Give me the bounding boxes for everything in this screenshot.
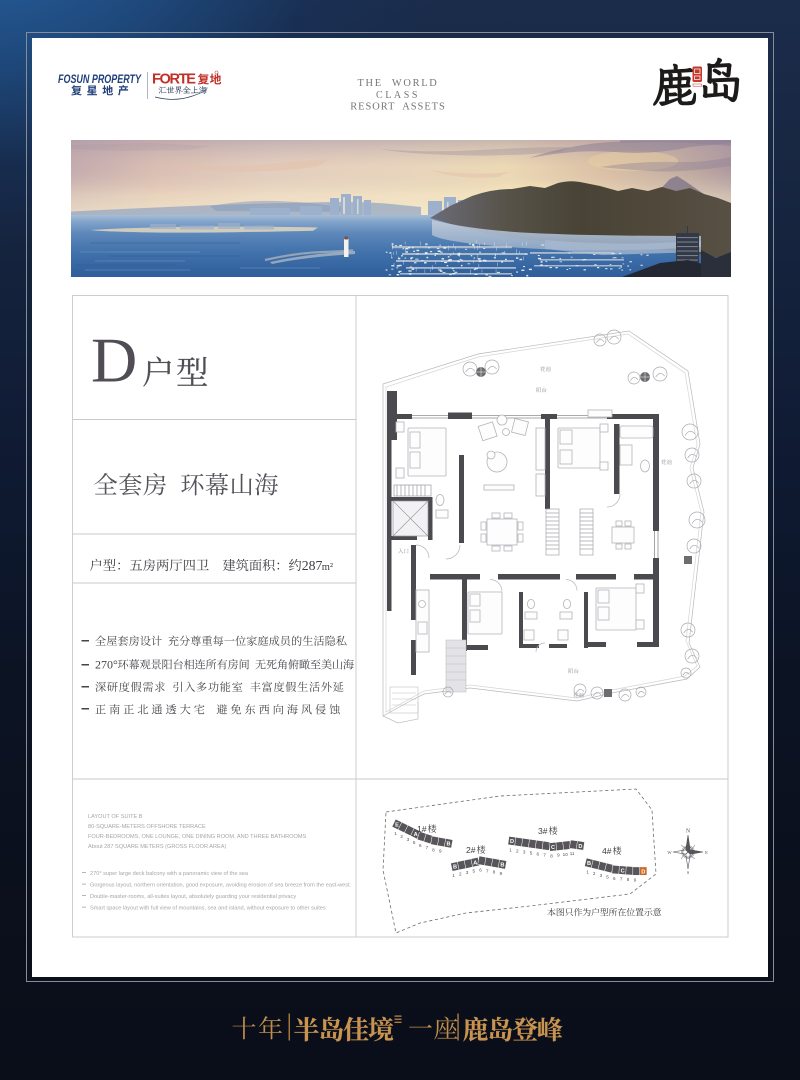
svg-text:2#: 2# [466, 845, 476, 855]
svg-text:D: D [641, 869, 645, 875]
svg-text:5: 5 [530, 850, 533, 855]
svg-text:1#: 1# [417, 824, 427, 834]
svg-text:7: 7 [426, 845, 429, 850]
svg-text:C: C [551, 845, 555, 851]
svg-text:B: B [453, 865, 457, 871]
svg-text:6: 6 [419, 843, 422, 848]
svg-text:Double-master-rooms, all-suite: Double-master-rooms, all-suites layout, … [90, 894, 296, 900]
svg-text:9: 9 [439, 849, 442, 854]
svg-text:B: B [446, 841, 450, 847]
svg-text:7: 7 [620, 877, 623, 882]
svg-text:3#: 3# [538, 826, 548, 836]
svg-text:N: N [686, 829, 691, 835]
svg-text:1: 1 [509, 848, 512, 853]
svg-text:D: D [510, 839, 514, 845]
svg-text:10: 10 [563, 852, 569, 857]
svg-text:Gorgeous layout, northern orie: Gorgeous layout, northern orientation, g… [90, 883, 352, 889]
svg-text:2: 2 [400, 834, 403, 839]
svg-text:2: 2 [516, 848, 519, 853]
svg-text:3: 3 [600, 873, 603, 878]
svg-text:Smart space layout with full v: Smart space layout with full view of mou… [90, 906, 326, 912]
svg-text:8: 8 [432, 847, 435, 852]
svg-text:THE WORLD: THE WORLD [358, 78, 439, 89]
svg-text:D: D [91, 325, 137, 396]
svg-text:CLASS: CLASS [376, 90, 420, 101]
svg-text:8: 8 [493, 870, 496, 875]
svg-text:3: 3 [523, 849, 526, 854]
svg-text:7: 7 [543, 852, 546, 857]
svg-text:5: 5 [606, 875, 609, 880]
svg-text:5: 5 [413, 840, 416, 845]
svg-text:270° super large deck balcony: 270° super large deck balcony with a pan… [90, 871, 249, 877]
svg-text:m²: m² [322, 562, 333, 573]
svg-text:9: 9 [634, 878, 637, 883]
svg-text:E: E [395, 823, 399, 829]
svg-text:287: 287 [302, 558, 323, 573]
svg-text:About 287 SQUARE METERS (GROSS: About 287 SQUARE METERS (GROSS FLOOR ARE… [88, 844, 226, 850]
svg-text:B: B [587, 861, 591, 867]
svg-text:9: 9 [500, 871, 503, 876]
svg-text:D: D [578, 844, 582, 850]
svg-text:80-SQUARE-METERS OFFSHORE TERR: 80-SQUARE-METERS OFFSHORE TERRACE [88, 824, 206, 830]
svg-text:1: 1 [452, 873, 455, 878]
svg-text:1: 1 [586, 870, 589, 875]
svg-text:8: 8 [550, 853, 553, 858]
svg-text:9: 9 [557, 853, 560, 858]
svg-text:3: 3 [466, 870, 469, 875]
svg-text:C: C [621, 868, 625, 874]
svg-text:6: 6 [479, 867, 482, 872]
svg-text:3: 3 [407, 837, 410, 842]
svg-text:A: A [473, 860, 477, 866]
svg-text:4#: 4# [602, 846, 612, 856]
svg-text:B: B [500, 863, 504, 869]
svg-text:6: 6 [613, 876, 616, 881]
svg-text:7: 7 [486, 868, 489, 873]
svg-text:RESORT ASSETS: RESORT ASSETS [350, 102, 446, 113]
svg-text:2: 2 [593, 871, 596, 876]
svg-text:270°: 270° [95, 658, 118, 672]
svg-text:LAYOUT OF SUITE B: LAYOUT OF SUITE B [88, 814, 143, 820]
svg-text:FOSUN PROPERTY: FOSUN PROPERTY [58, 72, 142, 86]
svg-text:11: 11 [570, 851, 575, 856]
svg-text:E: E [705, 850, 708, 855]
svg-text:8: 8 [627, 877, 630, 882]
svg-text:FORTE: FORTE [152, 72, 196, 88]
svg-text:6: 6 [537, 851, 540, 856]
svg-text:FOUR-BEDROOMS, ONE LOUNGE, ONE: FOUR-BEDROOMS, ONE LOUNGE, ONE DINING RO… [88, 834, 307, 840]
svg-text:2: 2 [459, 872, 462, 877]
svg-text:5: 5 [472, 869, 475, 874]
svg-text:1: 1 [394, 831, 397, 836]
